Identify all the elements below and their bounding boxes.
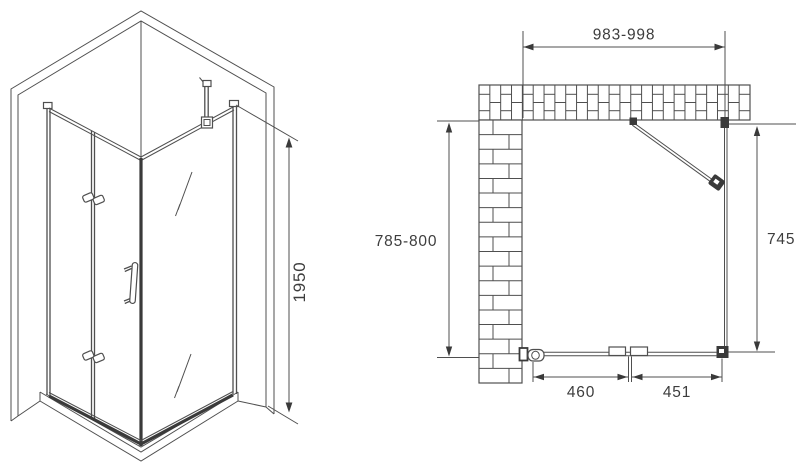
front-door-panel [520,347,718,361]
width-dim-label: 983-998 [593,27,655,44]
arrow-down-icon [286,403,293,413]
door-segment-dimensions: 460 451 [533,357,722,402]
arrow-up-icon [286,138,293,148]
fold-profile-right [631,347,648,356]
bifold-door-fold-line [92,131,95,421]
arrow-up-icon [754,126,760,136]
support-bar-clamp [708,174,726,192]
shower-enclosure-drawing: 1950 983-998 785-800 [0,0,800,464]
hinge-upper-left-lobe [82,192,94,203]
support-bar [632,123,715,184]
depth-dimension: 785-800 [375,123,452,357]
arrow-down-icon [446,347,452,357]
fixed-dim-label: 451 [663,384,691,401]
arrow-left-icon [524,44,534,51]
depth-dim-label: 785-800 [375,233,437,250]
left-wall [479,120,522,383]
glass-reflection-marks [175,172,193,398]
top-wall [479,85,750,120]
arrow-up-icon [446,123,452,133]
arrow-right-icon [715,44,725,51]
fixed-side-panel [630,117,730,358]
right-frame-post [233,106,237,394]
door-handle [124,262,138,303]
rod-cap [203,81,211,87]
arrow-down-icon [754,342,760,352]
height-dimension: 1950 [236,105,309,424]
fold-profile-left [609,347,626,356]
rod-shaft [205,87,208,118]
support-rod [200,78,213,129]
hinge-lower-left-lobe [82,350,94,361]
side-dim-label: 745 [767,231,795,248]
rod-clamp [202,117,213,128]
segment-extension-lines [533,357,722,383]
door-hinges [82,192,105,363]
door-dim-label: 460 [567,384,595,401]
left-frame-post [47,108,50,395]
arrow-left-icon [633,374,643,380]
arrow-right-icon [711,374,721,380]
height-dim-label: 1950 [290,261,309,302]
top-rail-right [141,107,234,161]
side-dimension: 745 [754,126,795,352]
technical-drawing-canvas: 1950 983-998 785-800 [0,0,800,464]
wall-hinge-profile [520,348,528,361]
isometric-view: 1950 [11,11,309,461]
wall-mount-bracket [721,117,730,128]
arrow-right-icon [618,374,628,380]
support-bar-wall-anchor [630,118,638,126]
plan-view: 983-998 785-800 745 [375,27,796,402]
corner-joint-notch [719,349,724,353]
arrow-left-icon [534,374,544,380]
left-post-cap [44,103,53,109]
side-glass-panel [725,128,728,347]
